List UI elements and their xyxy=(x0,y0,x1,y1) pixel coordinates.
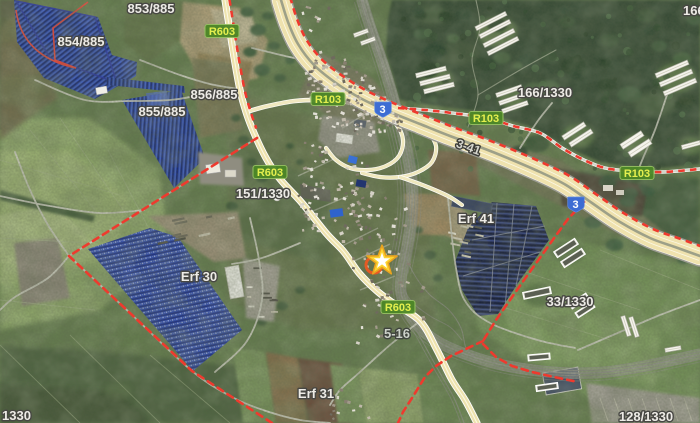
svg-text:856/885: 856/885 xyxy=(191,87,238,102)
svg-text:R603: R603 xyxy=(385,302,411,314)
svg-text:3: 3 xyxy=(380,104,386,116)
svg-text:151/1330: 151/1330 xyxy=(236,186,290,201)
svg-text:Erf 30: Erf 30 xyxy=(181,269,217,284)
svg-text:R603: R603 xyxy=(209,26,235,38)
svg-text:853/885: 853/885 xyxy=(128,1,175,16)
svg-text:R103: R103 xyxy=(315,94,341,106)
svg-text:33/1330: 33/1330 xyxy=(547,294,594,309)
svg-text:Erf 41: Erf 41 xyxy=(458,211,494,226)
svg-text:R103: R103 xyxy=(473,113,499,125)
svg-text:128/1330: 128/1330 xyxy=(619,409,673,423)
svg-text:5-16: 5-16 xyxy=(384,326,410,341)
svg-text:1330: 1330 xyxy=(2,408,31,423)
svg-text:854/885: 854/885 xyxy=(58,34,105,49)
svg-text:166/1330: 166/1330 xyxy=(518,85,572,100)
svg-text:Erf 31: Erf 31 xyxy=(298,386,334,401)
svg-text:3: 3 xyxy=(573,199,579,211)
svg-text:R103: R103 xyxy=(624,168,650,180)
svg-text:166/1: 166/1 xyxy=(683,3,700,18)
svg-text:855/885: 855/885 xyxy=(139,104,186,119)
svg-text:R603: R603 xyxy=(257,167,283,179)
